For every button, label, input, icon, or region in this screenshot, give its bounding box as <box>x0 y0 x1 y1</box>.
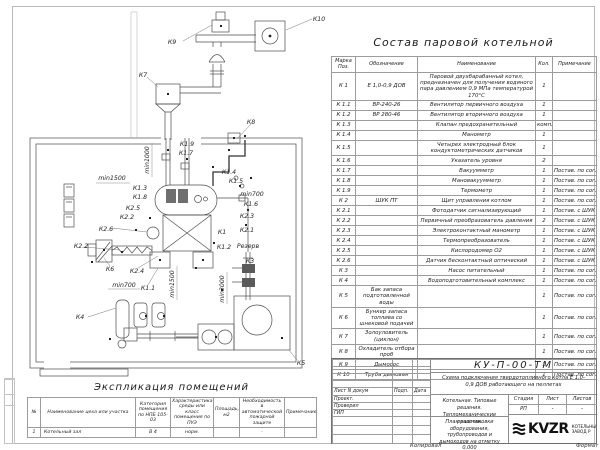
cell-name: Насос питательный <box>418 266 536 276</box>
cell-note: Постав. по согл. <box>553 196 597 206</box>
table-row: К 1.2ВР 280-46Вентилятор вторичного возд… <box>332 110 597 120</box>
cell-note <box>553 130 597 140</box>
cell-name: Паровой двухбарабанный котел, предназнач… <box>418 73 536 101</box>
cell-pos: К 2.5 <box>332 246 356 256</box>
cell-note: Постав. с ШУК <box>553 216 597 226</box>
cell-designation <box>356 130 418 140</box>
cell-note: Постав. с ШУК <box>553 236 597 246</box>
plan-label-k7: К7 <box>139 72 147 79</box>
cell-pos: К 1.2 <box>332 110 356 120</box>
room-explication-title: Экспликация помещений <box>27 382 316 393</box>
table-row: К 7Золоуловитель (циклон)1Постав. по сог… <box>332 329 597 344</box>
leader-lines <box>84 19 312 360</box>
plan-label-k22b: К2.2 <box>74 243 88 250</box>
cell-designation <box>356 226 418 236</box>
cell-name: Термопреобразователь <box>418 236 536 246</box>
table-row: К 4Водоподготовительный комплекс1Постав.… <box>332 276 597 286</box>
cell-qty: 1 <box>536 266 553 276</box>
table-row: К 2.1Фотодатчик сигнализирующий1Постав. … <box>332 206 597 216</box>
cell-num: 1 <box>28 428 41 438</box>
col-header-category: Категория помещения по НПБ 105-03 <box>136 398 171 428</box>
company-name: КОТЕЛЬНЫЙ ЗАВОД Р <box>572 424 596 435</box>
cell-designation: Золоуловитель (циклон) <box>356 329 418 344</box>
stage-grid: Стадия Лист Листов РП - - <box>508 395 596 415</box>
table-row: К 1.1ВР-240-26Вентилятор первичного возд… <box>332 100 597 110</box>
equipment-table: Марка Поз. Обозначение Наименование Кол.… <box>331 56 597 380</box>
sig-row-empty <box>333 381 431 388</box>
cell-qty: 1 <box>536 176 553 186</box>
cell-name: Кислородомер О2 <box>418 246 536 256</box>
col-header-environment: Характеристика среды или класс помещения… <box>171 398 214 428</box>
col-header-fire-protection: Необходимость в автоматической пожарной … <box>240 398 285 428</box>
plan-label-k12: К1.2 <box>217 244 231 251</box>
object-name-line1: Котельная. Типовые решения. <box>431 398 508 412</box>
sheets-value: - <box>567 405 597 415</box>
plan-label-k8: К8 <box>247 119 255 126</box>
cell-designation <box>356 120 418 130</box>
sig-row-empty <box>333 367 431 374</box>
control-cabinets-symbol <box>64 184 74 227</box>
sig-header-doc: Лист N докум <box>333 388 393 396</box>
role-designer: Проект. <box>333 396 393 403</box>
sig-row-role: Проверил <box>333 403 431 410</box>
cell-qty: компл. <box>536 120 553 130</box>
cell-qty: 1 <box>536 100 553 110</box>
cell-qty: 1 <box>536 110 553 120</box>
sig-header-sign: Подп. <box>393 388 413 396</box>
sig-row-empty <box>333 360 431 367</box>
table-row: К 1.5Четырех электродный блок кондуктоме… <box>332 140 597 155</box>
sheets-label: Листов <box>567 395 597 405</box>
plan-label-k17: К1.7 <box>179 150 193 157</box>
cell-fire: - <box>240 428 285 438</box>
cell-note <box>553 140 597 155</box>
cell-designation: Бак запаса подготовленной воды <box>356 286 418 308</box>
cell-pos: К 5 <box>332 286 356 308</box>
plan-label-k24: К2.4 <box>130 268 144 275</box>
cell-qty: 1 <box>536 276 553 286</box>
drawing-sheet: К9 К10 К7 К8 К1.9 К1.7 К1.4 К1.5 min700 … <box>0 0 600 450</box>
sig-row-role: ГИП <box>333 410 431 417</box>
cell-qty: 1 <box>536 329 553 344</box>
instrument-point-markers <box>91 25 283 340</box>
cell-note: Постав. с ШУК <box>553 256 597 266</box>
cell-note: Постав. по согл. <box>553 166 597 176</box>
stage-value: РП <box>509 405 539 415</box>
cell-note: Постав. по согл. <box>553 186 597 196</box>
cell-pos: К 1.6 <box>332 156 356 166</box>
cell-qty: 1 <box>536 166 553 176</box>
plan-label-k3: К3 <box>246 258 254 265</box>
sheet-name: План расстановки оборудования, трубопров… <box>430 417 508 443</box>
table-row: К 1Е 1,0-0,9 ДОВПаровой двухбарабанный к… <box>332 73 597 101</box>
equipment-table-header-row: Марка Поз. Обозначение Наименование Кол.… <box>332 57 597 73</box>
cell-designation: Бункер запаса топлива со шнековой подаче… <box>356 307 418 329</box>
cell-pos: К 1.3 <box>332 120 356 130</box>
flue-duct-symbol <box>180 35 256 93</box>
cell-pos: К 2.2 <box>332 216 356 226</box>
table-row: К 1.7Вакуумметр1Постав. по согл. <box>332 166 597 176</box>
explication-header-row: № Наименование цеха или участка Категори… <box>28 398 317 428</box>
table-row: К 1.6Указатель уровня2 <box>332 156 597 166</box>
table-row: К 1.4Манометр1 <box>332 130 597 140</box>
format-label: Формат <box>576 443 598 449</box>
cell-name: Четырех электродный блок кондуктометриче… <box>418 140 536 155</box>
cell-pos: К 2.3 <box>332 226 356 236</box>
cell-name: Манометр <box>418 130 536 140</box>
cell-qty: 1 <box>536 196 553 206</box>
cell-pos: К 1 <box>332 73 356 101</box>
smoke-exhauster-symbol <box>212 12 229 32</box>
equipment-list-title: Состав паровой котельной <box>331 36 596 49</box>
company-name-line2: ЗАВОД Р <box>572 429 596 434</box>
kvzr-logo-icon <box>512 422 526 436</box>
cell-note <box>553 73 597 101</box>
cell-note: Постав. по согл. <box>553 176 597 186</box>
cell-qty: 1 <box>536 226 553 236</box>
cell-pos: К 6 <box>332 307 356 329</box>
cell-designation <box>356 176 418 186</box>
cell-qty: 1 <box>536 186 553 196</box>
sig-row-role: Проект. <box>333 396 431 403</box>
cell-pos: К 1.7 <box>332 166 356 176</box>
cell-note: Постав. по согл. <box>553 276 597 286</box>
col-header-qty: Кол. <box>536 57 553 73</box>
table-row: К 6Бункер запаса топлива со шнековой под… <box>332 307 597 329</box>
sig-row-empty <box>333 417 431 426</box>
cell-note <box>553 110 597 120</box>
cell-designation <box>356 186 418 196</box>
table-row: К 1.3Клапан предохранительныйкомпл. <box>332 120 597 130</box>
plan-label-k21: К2.1 <box>240 227 254 234</box>
cell-pos: К 2.1 <box>332 206 356 216</box>
plan-label-k13: К1.3 <box>133 185 147 192</box>
cell-qty: 1 <box>536 307 553 329</box>
table-row: 1Котельный залВ 4норм.- <box>28 428 317 438</box>
cell-qty: 1 <box>536 206 553 216</box>
room-explication: Экспликация помещений № Наименование цех… <box>27 382 316 438</box>
cell-qty: 1 <box>536 286 553 308</box>
cell-designation <box>356 140 418 155</box>
cell-designation <box>356 156 418 166</box>
table-row: К 2.6Датчик бесконтактный оптический1Пос… <box>332 256 597 266</box>
cell-pos: К 1.4 <box>332 130 356 140</box>
table-row: К 2.5Кислородомер О21Постав. с ШУК <box>332 246 597 256</box>
plan-label-min1500-bottom: min1500 <box>169 270 176 297</box>
plan-label-min1000: min1000 <box>144 146 151 173</box>
document-number: КУ-П-00-ТМ <box>430 359 596 373</box>
plan-label-k11: К1.1 <box>141 285 155 292</box>
cell-qty: 1 <box>536 236 553 246</box>
cell-designation: ШУК ПТ <box>356 196 418 206</box>
cell-note: Постав. с ШУК <box>553 246 597 256</box>
cell-designation <box>356 216 418 226</box>
cell-designation <box>356 236 418 246</box>
cell-designation <box>356 276 418 286</box>
plan-label-k10: К10 <box>313 16 325 23</box>
plan-label-k6: К6 <box>106 266 114 273</box>
role-checker: Проверил <box>333 403 393 410</box>
plan-label-min700-bottom: min700 <box>112 282 136 289</box>
cell-qty: 1 <box>536 246 553 256</box>
table-row: К 2.2Первичный преобразователь давления2… <box>332 216 597 226</box>
plan-label-k22: К2.2 <box>120 214 134 221</box>
object-name: Котельная. Типовые решения. Тепломеханич… <box>430 395 508 417</box>
col-header-designation: Обозначение <box>356 57 418 73</box>
cell-designation: ВР 280-46 <box>356 110 418 120</box>
title-block: Лист N докум Подп. Дата Проект. Проверил… <box>331 358 597 444</box>
cell-pos: К 7 <box>332 329 356 344</box>
sig-row-empty <box>333 426 431 435</box>
plan-label-k5: К5 <box>297 360 305 367</box>
cell-name <box>418 286 536 308</box>
cell-pos: К 2.6 <box>332 256 356 266</box>
cell-qty: 1 <box>536 130 553 140</box>
cell-qty: 1 <box>536 73 553 101</box>
signature-table: Лист N докум Подп. Дата Проект. Проверил… <box>332 359 431 444</box>
plan-label-k14: К1.4 <box>222 169 236 176</box>
plan-label-min700-right: min700 <box>240 191 264 198</box>
cyclone-symbol <box>156 84 180 140</box>
cell-note <box>553 100 597 110</box>
document-title: Схема подключения твердотопливного котла… <box>430 373 596 395</box>
cell-name: Электроконтактный манометр <box>418 226 536 236</box>
col-header-note: Примечание <box>553 57 597 73</box>
plan-label-k9: К9 <box>168 39 176 46</box>
copied-label: Копировал <box>410 443 441 449</box>
cell-note: Постав. с ШУК <box>553 226 597 236</box>
cell-note: Постав. по согл. <box>553 329 597 344</box>
cell-designation <box>356 206 418 216</box>
cell-name: Вакуумметр <box>418 166 536 176</box>
col-header-area: Площадь, м2 <box>214 398 240 428</box>
plan-label-k4: К4 <box>76 314 84 321</box>
cell-qty: 1 <box>536 256 553 266</box>
plan-label-k16: К1.6 <box>244 201 258 208</box>
fuel-bunker-symbol <box>88 240 152 262</box>
cell-pos: К 1.9 <box>332 186 356 196</box>
cell-pos: К 1.1 <box>332 100 356 110</box>
cell-name: Клапан предохранительный <box>418 120 536 130</box>
cell-name: Термометр <box>418 186 536 196</box>
chimney-symbol <box>255 21 285 51</box>
equipment-list: Состав паровой котельной Марка Поз. Обоз… <box>331 36 596 380</box>
cell-designation <box>356 256 418 266</box>
water-treatment-symbol <box>116 300 198 348</box>
cell-name: Указатель уровня <box>418 156 536 166</box>
cell-name: Вентилятор первичного воздуха <box>418 100 536 110</box>
cell-name: Водоподготовительный комплекс <box>418 276 536 286</box>
cell-category: В 4 <box>136 428 171 438</box>
table-row: К 1.9Термометр1Постав. по согл. <box>332 186 597 196</box>
cell-qty: 2 <box>536 216 553 226</box>
cell-qty: 1 <box>536 140 553 155</box>
cell-name <box>418 329 536 344</box>
table-row: К 2ШУК ПТЩит управления котлом1Постав. п… <box>332 196 597 206</box>
plan-label-min1500-top: min1500 <box>98 175 125 182</box>
cell-pos: К 3 <box>332 266 356 276</box>
plan-label-k23: К2.3 <box>240 213 254 220</box>
cell-name: Котельный зал <box>41 428 136 438</box>
water-tank-symbol <box>176 296 290 350</box>
cell-qty: 2 <box>536 156 553 166</box>
cell-name: Первичный преобразователь давления <box>418 216 536 226</box>
col-header-room-name: Наименование цеха или участка <box>41 398 136 428</box>
plan-label-k1: К1 <box>218 229 226 236</box>
plan-label-k26: К2.6 <box>99 226 113 233</box>
sheet-value: - <box>539 405 567 415</box>
kvzr-logo-text: KVZR <box>528 421 569 437</box>
explication-table: № Наименование цеха или участка Категори… <box>27 397 317 438</box>
cell-pos: К 1.5 <box>332 140 356 155</box>
cell-designation <box>356 166 418 176</box>
cell-note: Постав. по согл. <box>553 266 597 276</box>
cell-designation: Е 1,0-0,9 ДОВ <box>356 73 418 101</box>
cell-note <box>553 120 597 130</box>
cell-pos: К 2.4 <box>332 236 356 246</box>
plan-label-k15: К1.5 <box>229 178 243 185</box>
stage-label: Стадия <box>509 395 539 405</box>
cell-note <box>553 156 597 166</box>
role-gip: ГИП <box>333 410 393 417</box>
cell-designation: ВР-240-26 <box>356 100 418 110</box>
cell-name: Датчик бесконтактный оптический <box>418 256 536 266</box>
plan-label-k25: К2.5 <box>126 205 140 212</box>
sheet-label: Лист <box>539 395 567 405</box>
col-header-pos: Марка Поз. <box>332 57 356 73</box>
col-header-name: Наименование <box>418 57 536 73</box>
col-header-num: № <box>28 398 41 428</box>
cell-note: Постав. с ШУК <box>553 206 597 216</box>
cell-name: Мановакуумметр <box>418 176 536 186</box>
plan-label-reserve: Резерв <box>237 243 260 250</box>
plan-label-k19: К1.9 <box>180 141 194 148</box>
plan-label-k18: К1.8 <box>133 194 147 201</box>
cell-note: Постав. по согл. <box>553 307 597 329</box>
roof-edge-line <box>131 12 137 138</box>
dimension-lines <box>96 143 227 304</box>
cell-pos: К 1.8 <box>332 176 356 186</box>
cell-designation <box>356 266 418 276</box>
cell-pos: К 4 <box>332 276 356 286</box>
sig-row-empty <box>333 374 431 381</box>
sig-header-date: Дата <box>413 388 431 396</box>
cell-env: норм. <box>171 428 214 438</box>
cell-area <box>214 428 240 438</box>
cell-name <box>418 307 536 329</box>
cell-name: Фотодатчик сигнализирующий <box>418 206 536 216</box>
cell-designation <box>356 246 418 256</box>
cell-name: Вентилятор вторичного воздуха <box>418 110 536 120</box>
cell-name: Щит управления котлом <box>418 196 536 206</box>
cell-note <box>285 428 317 438</box>
col-header-room-note: Примечание <box>285 398 317 428</box>
cell-note: Постав. по согл. <box>553 286 597 308</box>
cell-pos: К 2 <box>332 196 356 206</box>
table-row: К 2.3Электроконтактный манометр1Постав. … <box>332 226 597 236</box>
table-row: К 5Бак запаса подготовленной воды1Постав… <box>332 286 597 308</box>
table-row: К 1.8Мановакуумметр1Постав. по согл. <box>332 176 597 186</box>
plan-label-min3000: min3000 <box>219 275 226 302</box>
sig-header-row: Лист N докум Подп. Дата <box>333 388 431 396</box>
company-block: KVZR КОТЕЛЬНЫЙ ЗАВОД Р <box>508 415 596 443</box>
table-row: К 2.4Термопреобразователь1Постав. с ШУК <box>332 236 597 246</box>
table-row: К 3Насос питательный1Постав. по согл. <box>332 266 597 276</box>
